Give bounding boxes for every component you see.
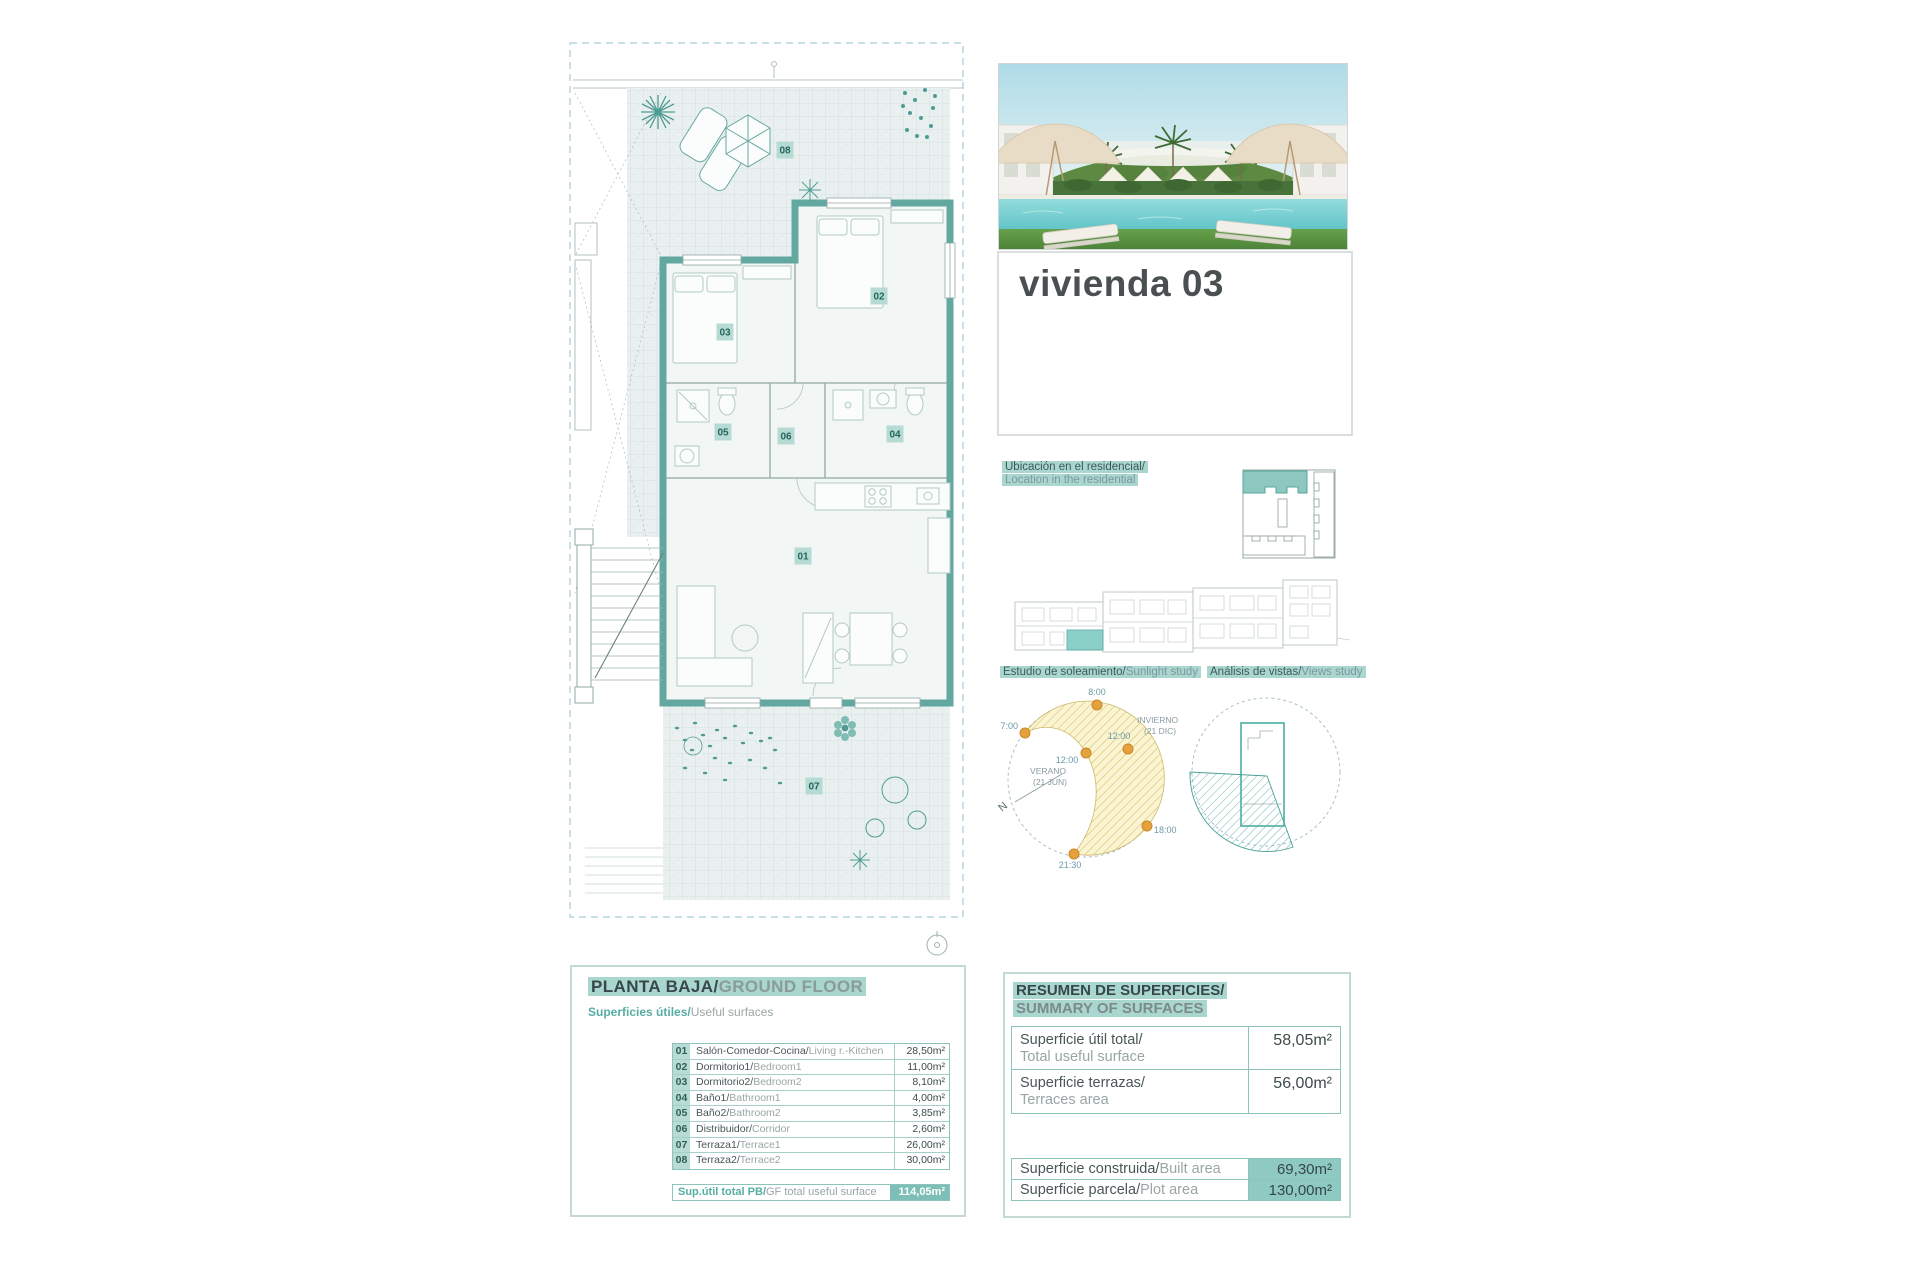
- svg-text:INVIERNO: INVIERNO: [1137, 715, 1178, 725]
- summary-totals-table: Superficie construida/Built area 69,30m²…: [1011, 1158, 1341, 1201]
- room-label-01: 01: [795, 548, 812, 565]
- room-label-02: 02: [871, 288, 888, 305]
- svg-text:18:00: 18:00: [1154, 825, 1177, 835]
- table-row: 02Dormitorio1/Bedroom111,00m²: [673, 1060, 949, 1076]
- total-row: Sup.útil total PB/GF total useful surfac…: [672, 1184, 950, 1201]
- svg-text:02: 02: [873, 292, 885, 303]
- summary-total-row: Superficie construida/Built area 69,30m²: [1012, 1159, 1340, 1180]
- hero-photo: [998, 63, 1348, 250]
- location-label-es: Ubicación en el residencial/: [1002, 461, 1148, 473]
- svg-text:04: 04: [889, 430, 901, 441]
- highlighted-unit: [1243, 471, 1307, 493]
- page-title: vivienda 03: [1019, 263, 1224, 305]
- svg-text:7:00: 7:00: [1000, 721, 1018, 731]
- svg-text:(21 DIC): (21 DIC): [1144, 726, 1176, 736]
- reference-marker: [927, 931, 947, 955]
- summary-panel: RESUMEN DE SUPERFICIES/ SUMMARY OF SURFA…: [1003, 972, 1351, 1218]
- sunlight-study-label: Estudio de soleamiento/Sunlight study: [1000, 666, 1201, 678]
- room-label-03: 03: [717, 324, 734, 341]
- room-label-06: 06: [778, 428, 795, 445]
- ground-floor-subtitle: Superficies útiles/Useful surfaces: [588, 1005, 773, 1019]
- ground-floor-panel: PLANTA BAJA/GROUND FLOOR Superficies úti…: [570, 965, 966, 1217]
- views-sector: [1190, 772, 1293, 852]
- svg-text:12:00: 12:00: [1108, 731, 1131, 741]
- unit-location-diagram: [1240, 465, 1340, 565]
- residential-elevation: [1010, 578, 1350, 658]
- summary-row: Superficie útil total/Total useful surfa…: [1012, 1027, 1340, 1070]
- room-label-07: 07: [806, 778, 823, 795]
- table-row: 04Baño1/Bathroom14,00m²: [673, 1091, 949, 1107]
- location-label: Ubicación en el residencial/ Location in…: [1002, 461, 1148, 487]
- title-card: vivienda 03: [997, 251, 1353, 436]
- room-label-08: 08: [777, 142, 794, 159]
- summary-total-row: Superficie parcela/Plot area 130,00m²: [1012, 1180, 1340, 1201]
- svg-text:05: 05: [717, 428, 729, 439]
- table-row: 08Terraza2/Terrace230,00m²: [673, 1153, 949, 1169]
- pool: [998, 199, 1348, 229]
- table-row: 03Dormitorio2/Bedroom28,10m²: [673, 1075, 949, 1091]
- location-label-en: Location in the residential: [1002, 474, 1138, 486]
- svg-text:12:00: 12:00: [1056, 755, 1079, 765]
- table-row: 07Terraza1/Terrace126,00m²: [673, 1138, 949, 1154]
- surfaces-table: 01Salón-Comedor-Cocina/Living r.-Kitchen…: [672, 1043, 950, 1170]
- total-area-value: 114,05m²: [890, 1185, 949, 1200]
- highlighted-dwelling: [1067, 630, 1103, 650]
- svg-text:VERANO: VERANO: [1030, 766, 1066, 776]
- views-study-label: Análisis de vistas/Views study: [1207, 666, 1366, 678]
- hedge: [1053, 179, 1293, 197]
- summary-row: Superficie terrazas/Terraces area 56,00m…: [1012, 1070, 1340, 1113]
- room-label-05: 05: [715, 424, 732, 441]
- svg-text:01: 01: [797, 552, 809, 563]
- stairs: [575, 529, 663, 893]
- views-diagram: [1190, 698, 1340, 852]
- ground-floor-title: PLANTA BAJA/GROUND FLOOR: [588, 977, 866, 997]
- sun-path-diagram: N 8:00 7:00 12:00 12:00 18:00 21:30 VERA…: [996, 687, 1178, 870]
- svg-text:06: 06: [780, 432, 792, 443]
- summary-title: RESUMEN DE SUPERFICIES/ SUMMARY OF SURFA…: [1013, 982, 1227, 1018]
- svg-text:(21 JUN): (21 JUN): [1033, 777, 1067, 787]
- floor-plan: 08 02 03 05 06 04 01 07: [565, 38, 970, 958]
- study-diagrams: N 8:00 7:00 12:00 12:00 18:00 21:30 VERA…: [990, 686, 1370, 892]
- table-row: 06Distribuidor/Corridor2,60m²: [673, 1122, 949, 1138]
- north-label: N: [996, 800, 1010, 814]
- neighbour-outline: [575, 223, 597, 430]
- svg-text:03: 03: [719, 328, 731, 339]
- summary-table: Superficie útil total/Total useful surfa…: [1011, 1026, 1341, 1114]
- room-label-04: 04: [887, 426, 904, 443]
- svg-text:07: 07: [808, 782, 820, 793]
- table-row: 05Baño2/Bathroom23,85m²: [673, 1106, 949, 1122]
- pool-deck: [998, 195, 1348, 199]
- svg-text:08: 08: [779, 146, 791, 157]
- svg-text:21:30: 21:30: [1059, 860, 1082, 870]
- svg-text:8:00: 8:00: [1088, 687, 1106, 697]
- table-row: 01Salón-Comedor-Cocina/Living r.-Kitchen…: [673, 1044, 949, 1060]
